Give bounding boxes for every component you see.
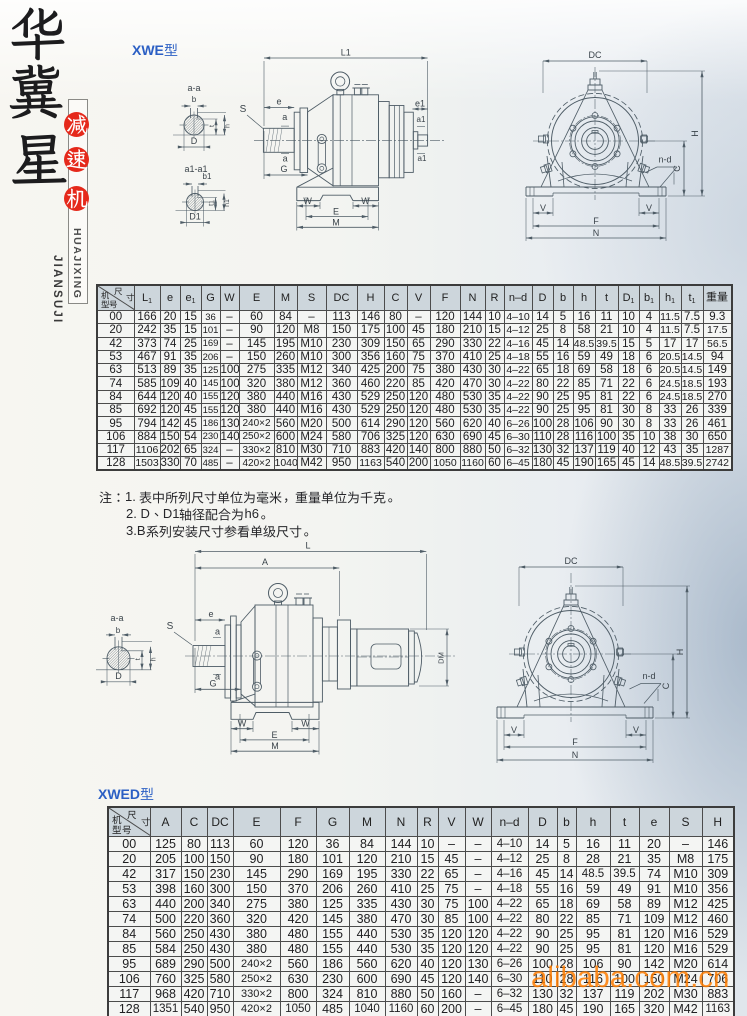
svg-text:b1: b1 — [203, 172, 212, 181]
svg-text:E: E — [333, 207, 339, 217]
svg-text:V: V — [511, 725, 517, 735]
svg-text:h: h — [151, 657, 158, 661]
svg-text:a: a — [283, 153, 288, 163]
svg-text:F: F — [572, 737, 578, 747]
svg-text:F: F — [593, 216, 599, 226]
svg-text:b: b — [192, 95, 197, 104]
svg-text:S: S — [167, 621, 174, 632]
svg-text:N: N — [572, 750, 579, 760]
svg-text:t1: t1 — [209, 200, 216, 206]
svg-text:H: H — [690, 130, 700, 137]
svg-text:h: h — [225, 124, 232, 128]
svg-text:t: t — [135, 658, 142, 660]
svg-text:DC: DC — [565, 556, 578, 566]
svg-text:a: a — [215, 627, 220, 637]
svg-text:H: H — [675, 649, 685, 656]
svg-text:t: t — [209, 125, 216, 127]
svg-text:e: e — [276, 97, 281, 107]
svg-text:a-a: a-a — [110, 613, 123, 623]
svg-text:V: V — [646, 203, 652, 213]
svg-text:h1: h1 — [224, 199, 231, 207]
svg-text:a: a — [282, 112, 287, 122]
svg-text:A: A — [262, 557, 268, 567]
svg-text:N: N — [593, 228, 600, 238]
svg-text:V: V — [540, 203, 546, 213]
svg-text:C: C — [661, 682, 671, 689]
svg-text:a1: a1 — [417, 115, 426, 124]
svg-text:a-a: a-a — [187, 83, 200, 93]
svg-text:D: D — [191, 136, 198, 146]
svg-text:W: W — [238, 719, 247, 729]
svg-text:b: b — [116, 626, 121, 635]
svg-text:W: W — [303, 196, 312, 206]
svg-text:DC: DC — [589, 50, 602, 60]
svg-text:L1: L1 — [341, 48, 351, 58]
svg-text:M: M — [271, 741, 279, 751]
svg-text:n-d: n-d — [642, 671, 655, 681]
svg-text:G: G — [209, 679, 216, 689]
svg-text:G: G — [280, 164, 287, 174]
svg-text:L: L — [305, 541, 310, 551]
svg-text:a1: a1 — [418, 154, 427, 163]
svg-text:W: W — [361, 196, 370, 206]
svg-text:M: M — [332, 217, 340, 227]
svg-text:D: D — [115, 671, 122, 681]
svg-text:D1: D1 — [189, 212, 201, 222]
svg-text:DM: DM — [437, 652, 446, 664]
svg-text:e: e — [208, 609, 213, 619]
svg-text:V: V — [633, 725, 639, 735]
svg-text:S: S — [240, 104, 247, 115]
svg-text:n-d: n-d — [658, 155, 671, 165]
svg-text:e1: e1 — [415, 99, 425, 109]
svg-text:E: E — [271, 730, 277, 740]
